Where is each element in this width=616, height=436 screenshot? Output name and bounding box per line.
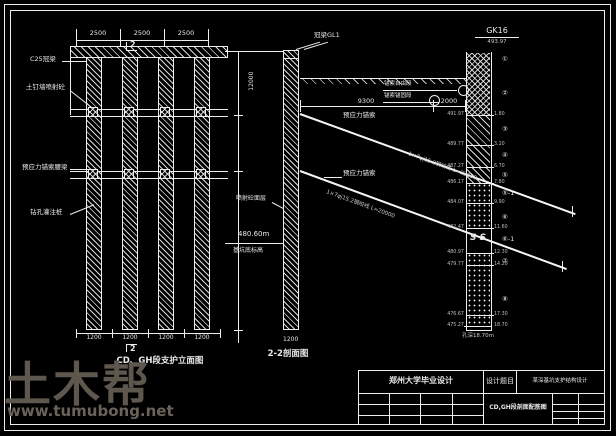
layer-boundary: [466, 265, 494, 266]
ground-hatch: [300, 79, 466, 84]
layer-elevation: 479.77: [438, 262, 464, 267]
layer-number: ④: [502, 152, 508, 159]
anchor-end-tick: [562, 261, 563, 272]
layer-number: ⑥: [502, 214, 508, 221]
layer-elevation: 489.77: [438, 142, 464, 147]
layer-depth: 18.70: [494, 323, 508, 328]
dim-tick: [234, 115, 243, 116]
dim-tick: [234, 51, 243, 52]
dim-line: [300, 106, 466, 107]
layer-number: ⑦: [502, 258, 508, 265]
extension-line: [120, 29, 121, 46]
stratum-fill-hatch: [467, 167, 490, 183]
cad-drawing-sheet: 2500 2500 2500 2 1200 1200 1200 1200 2 C…: [0, 0, 616, 436]
dim-text: 2500: [130, 30, 154, 37]
layer-elevation: 491.97: [438, 112, 464, 117]
plan-left-edge-line: [70, 58, 71, 115]
section-view-title: 2-2剖面图: [258, 350, 318, 359]
layer-depth: 1.80: [494, 112, 505, 117]
anchor-plate: [196, 107, 206, 117]
titleblock-line: [358, 370, 359, 425]
layer-elevation: 487.27: [438, 164, 464, 169]
layer-elevation: 476.67: [438, 312, 464, 317]
titleblock-line: [452, 393, 453, 425]
layer-number: ⑤: [502, 172, 508, 179]
layer-boundary: [466, 228, 494, 229]
bored-pile-label: 钻孔灌注桩: [30, 209, 63, 216]
titleblock-subject: 某深基坑支护结构设计: [517, 379, 603, 385]
pile: [86, 58, 102, 330]
watermark-site: www.tumubong.net: [7, 402, 174, 420]
dim-text: 1200: [82, 335, 106, 341]
dim-text: 1200: [190, 335, 214, 341]
stratum-fill-dots: [467, 315, 490, 326]
dim-text: 1200: [118, 335, 142, 341]
dim-line: [76, 40, 208, 41]
pit-bottom-label: 基坑底标高: [233, 248, 263, 254]
cap-beam-joint-line: [283, 58, 299, 59]
extension-line: [300, 100, 301, 112]
borehole-bottom-line: [464, 326, 492, 327]
layer-elevation: 486.17: [438, 180, 464, 185]
layer-boundary: [466, 183, 494, 184]
anchor-plate: [160, 169, 170, 179]
titleblock-line: [578, 393, 579, 425]
layer-elevation: 480.97: [438, 250, 464, 255]
leader-line: [70, 169, 90, 170]
borehole-name: GK16: [479, 27, 515, 35]
layer-number: ③: [502, 126, 508, 133]
layer-depth: 3.20: [494, 142, 505, 147]
stratum-fill-crosshatch: [467, 53, 490, 115]
layer-elevation: 475.27: [438, 323, 464, 328]
anchor-plate: [196, 169, 206, 179]
layer-number: ②: [502, 90, 508, 97]
stratum-fill-dots: [467, 253, 490, 315]
anchor-plate: [88, 107, 98, 117]
pile: [158, 58, 174, 330]
layer-depth: 11.60: [494, 225, 508, 230]
titleblock-line: [420, 393, 421, 425]
dim-text: 2500: [86, 30, 110, 37]
layer-number: ⑤-1: [502, 190, 514, 197]
titleblock-line: [552, 393, 553, 425]
anchor-free-length-label: 锚索自由段: [384, 82, 412, 88]
layer-depth: 9.90: [494, 200, 505, 205]
layer-depth: 17.30: [494, 312, 508, 317]
layer-elevation: 482.47: [438, 225, 464, 230]
layer-depth: 7.80: [494, 180, 505, 185]
leader-line: [324, 177, 342, 178]
section-marker: 2: [130, 41, 136, 49]
layer-boundary: [466, 253, 494, 254]
extension-line: [164, 29, 165, 46]
extension-line: [76, 29, 77, 46]
layer-number: ⑧: [502, 296, 508, 303]
dim-text: 2500: [174, 30, 198, 37]
layer-number: ⑥-1: [502, 236, 514, 243]
extension-line: [76, 329, 77, 338]
anchor-waler-label: 预应力锚索腰梁: [22, 164, 68, 171]
layer-depth: 6.70: [494, 164, 505, 169]
anchor-label: 预应力锚索: [343, 112, 376, 119]
borehole-ground-elevation: 493.97: [481, 40, 513, 46]
leader-line: [62, 61, 86, 62]
anchor-plate: [160, 107, 170, 117]
titleblock-line: [358, 370, 605, 371]
dim-text-vertical: 12000: [249, 61, 255, 101]
layer-boundary: [466, 145, 494, 146]
extension-line: [112, 329, 113, 338]
dim-text: 1200: [154, 335, 178, 341]
stratum-fill-hatch: [467, 115, 490, 167]
layer-boundary: [466, 203, 494, 204]
anchor-plate: [88, 169, 98, 179]
section-cut-line: [126, 50, 137, 51]
pile-spacing-text: 1200: [283, 337, 298, 343]
layer-boundary: [466, 315, 494, 316]
cap-beam-label: C25冠梁: [30, 56, 56, 63]
anchor-end-tick: [572, 206, 573, 217]
anchor-bond-length-label: 锚索锚固段: [384, 94, 412, 100]
borehole-name-underline: [475, 37, 519, 38]
extension-line: [184, 329, 185, 338]
soil-nail-wall-label: 土钉墙喷射砼: [26, 84, 65, 91]
layer-elevation: 484.07: [438, 200, 464, 205]
titleblock-line: [358, 393, 605, 394]
extension-line: [148, 329, 149, 338]
section-cut-line: [126, 42, 127, 50]
callout-line: [383, 90, 457, 91]
anchor-plate: [124, 107, 134, 117]
cap-beam-band: [70, 46, 228, 58]
pit-bottom-line: [225, 243, 283, 244]
anchor-plate: [124, 169, 134, 179]
titleblock-subject-label: 设计题目: [484, 378, 516, 385]
titleblock-line: [389, 393, 390, 425]
layer-boundary: [466, 167, 494, 168]
layer-number: ①: [502, 56, 508, 63]
callout-line: [383, 102, 439, 103]
dim-tick: [234, 171, 243, 172]
titleblock-school: 郑州大学毕业设计: [361, 377, 481, 385]
anchor-label: 预应力锚索: [343, 170, 376, 177]
dim-tick: [234, 330, 243, 331]
section-pile: [283, 50, 299, 330]
titleblock-drawing-name: CD,GH段剖面配筋图: [484, 405, 552, 411]
anchor-head-circle: [429, 95, 440, 106]
organic-symbol: S S: [470, 234, 486, 243]
crown-beam-label: 冠梁GL1: [314, 32, 340, 39]
shotcrete-face-label: 喷射砼面层: [236, 196, 266, 202]
pile: [122, 58, 138, 330]
dim-text: 9300: [346, 98, 386, 105]
pit-elevation: 480.60m: [238, 231, 269, 238]
layer-depth: 12.30: [494, 250, 508, 255]
stratum-fill-dots: [467, 183, 490, 228]
pile: [194, 58, 210, 330]
layer-boundary: [466, 115, 494, 116]
extension-line: [208, 29, 209, 46]
borehole-bottom-note: 孔深18.70m: [452, 334, 504, 340]
extension-line: [220, 329, 221, 338]
